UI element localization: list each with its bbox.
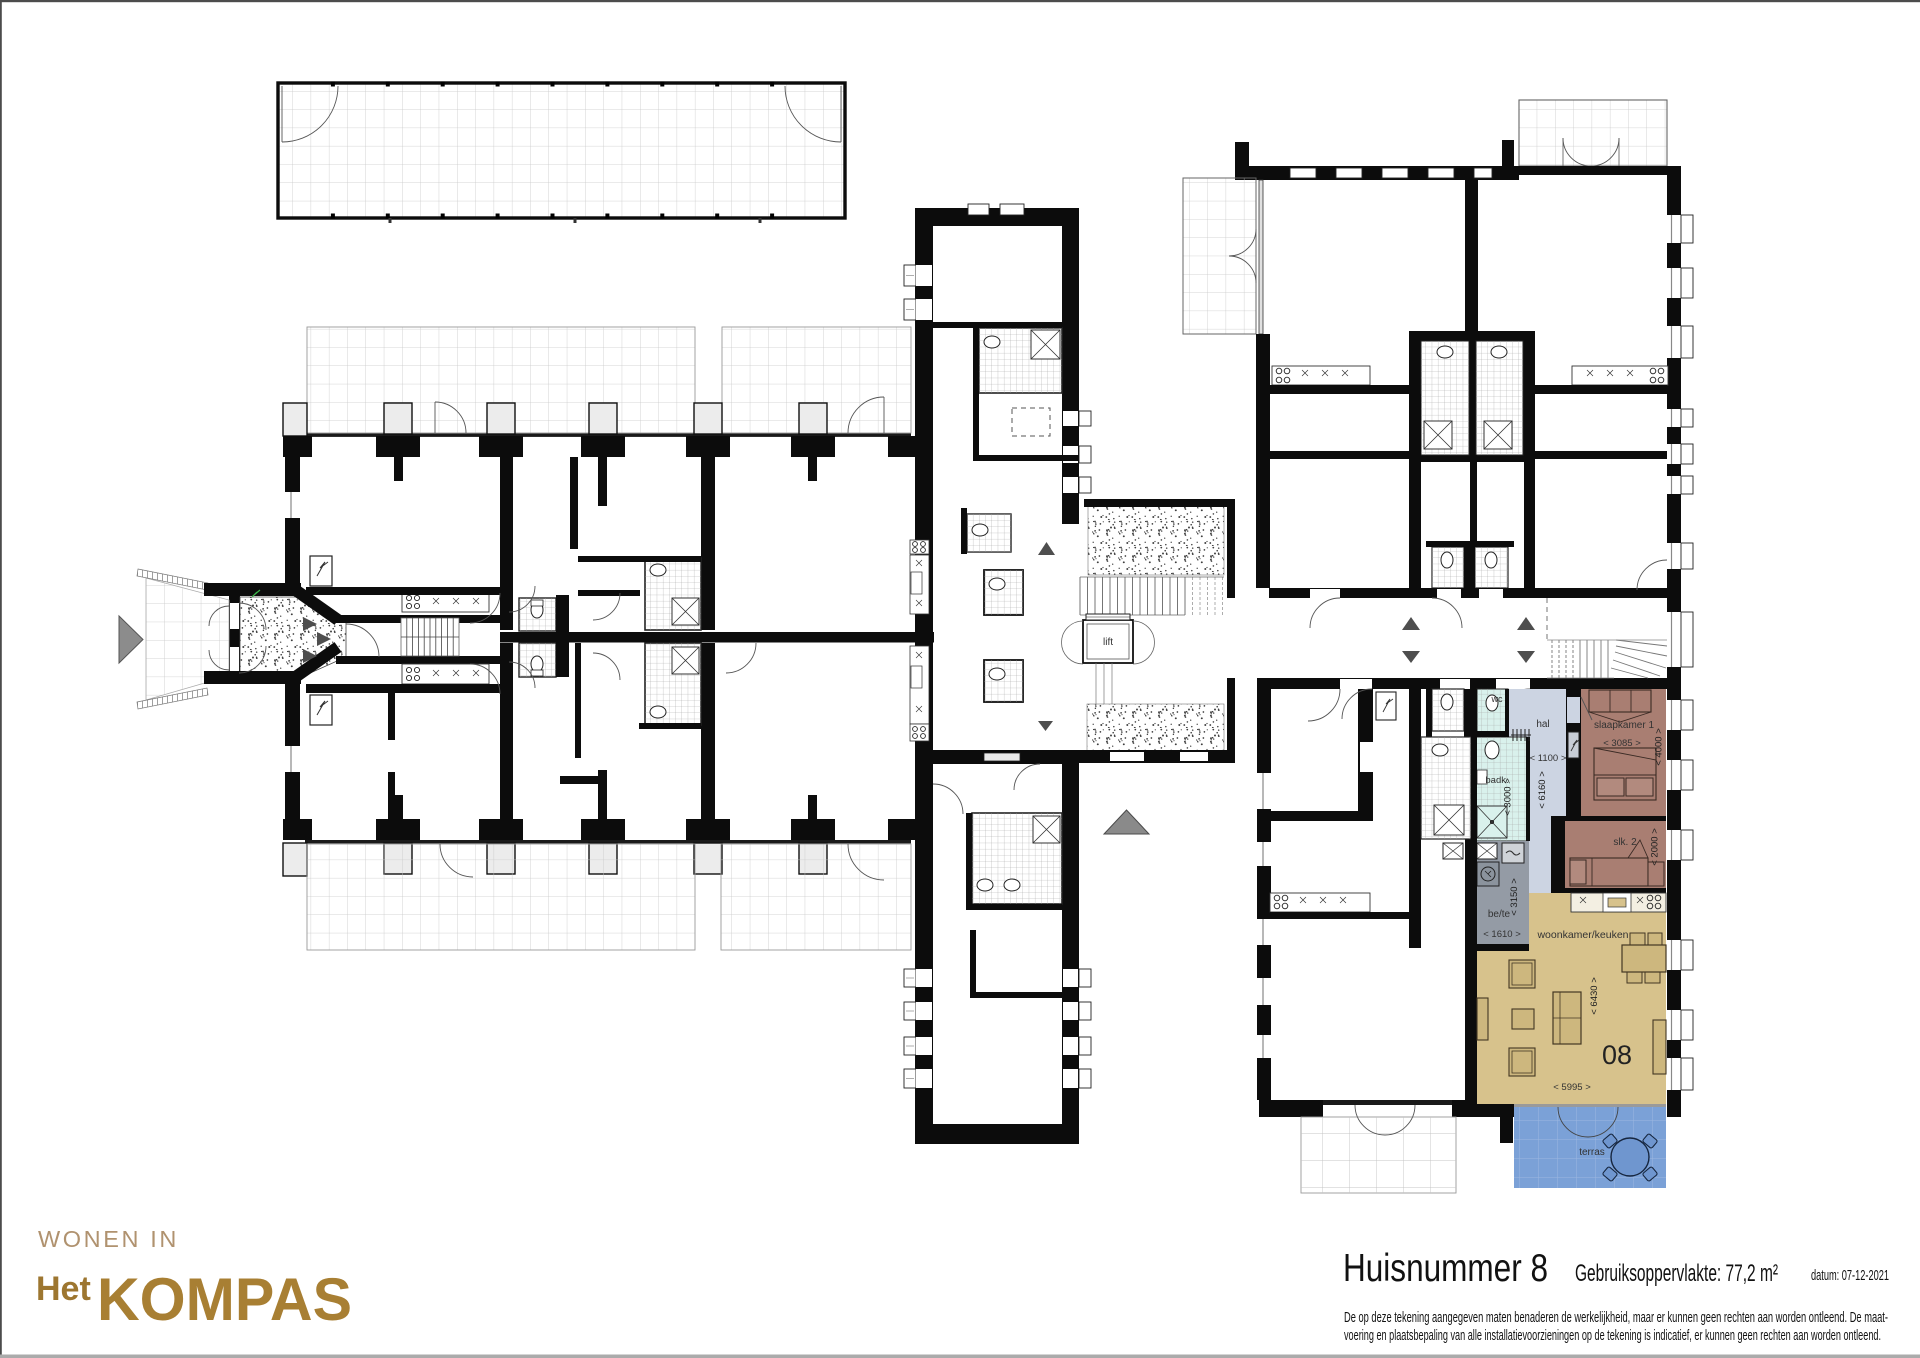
svg-text:08: 08 bbox=[1602, 1040, 1632, 1070]
svg-text:< 2000 >: < 2000 > bbox=[1650, 828, 1661, 866]
svg-text:De op deze tekening aangegeven: De op deze tekening aangegeven maten ben… bbox=[1344, 1310, 1888, 1326]
svg-text:< 3150 >: < 3150 > bbox=[1509, 878, 1520, 916]
svg-text:< 5995 >: < 5995 > bbox=[1553, 1082, 1591, 1093]
svg-text:wc: wc bbox=[1491, 694, 1503, 704]
svg-text:hal: hal bbox=[1536, 719, 1549, 730]
svg-text:woonkamer/keuken: woonkamer/keuken bbox=[1536, 929, 1628, 941]
svg-text:< 1100 >: < 1100 > bbox=[1530, 753, 1567, 764]
svg-text:lift: lift bbox=[1103, 637, 1113, 648]
svg-text:< 6430 >: < 6430 > bbox=[1589, 977, 1600, 1015]
svg-text:datum: 07-12-2021: datum: 07-12-2021 bbox=[1811, 1267, 1889, 1284]
svg-text:voering en plaatsbepaling van: voering en plaatsbepaling van alle insta… bbox=[1344, 1328, 1881, 1344]
svg-text:< 1610 >: < 1610 > bbox=[1483, 929, 1521, 940]
svg-text:slk. 2: slk. 2 bbox=[1613, 837, 1637, 848]
svg-text:slaapkamer 1: slaapkamer 1 bbox=[1594, 720, 1654, 731]
svg-text:< 3000 >: < 3000 > bbox=[1503, 778, 1514, 816]
svg-text:WONEN IN: WONEN IN bbox=[38, 1226, 179, 1252]
svg-text:< 4000 >: < 4000 > bbox=[1654, 728, 1665, 766]
svg-text:be/te: be/te bbox=[1488, 909, 1511, 920]
svg-text:Het: Het bbox=[36, 1270, 91, 1308]
svg-text:< 6160 >: < 6160 > bbox=[1537, 771, 1548, 809]
svg-text:Gebruiksoppervlakte: 77,2 m²: Gebruiksoppervlakte: 77,2 m² bbox=[1575, 1260, 1778, 1287]
svg-text:terras: terras bbox=[1579, 1147, 1605, 1158]
svg-text:KOMPAS: KOMPAS bbox=[97, 1266, 352, 1333]
svg-text:Huisnummer 8: Huisnummer 8 bbox=[1343, 1247, 1548, 1290]
svg-text:< 3085 >: < 3085 > bbox=[1603, 738, 1641, 749]
